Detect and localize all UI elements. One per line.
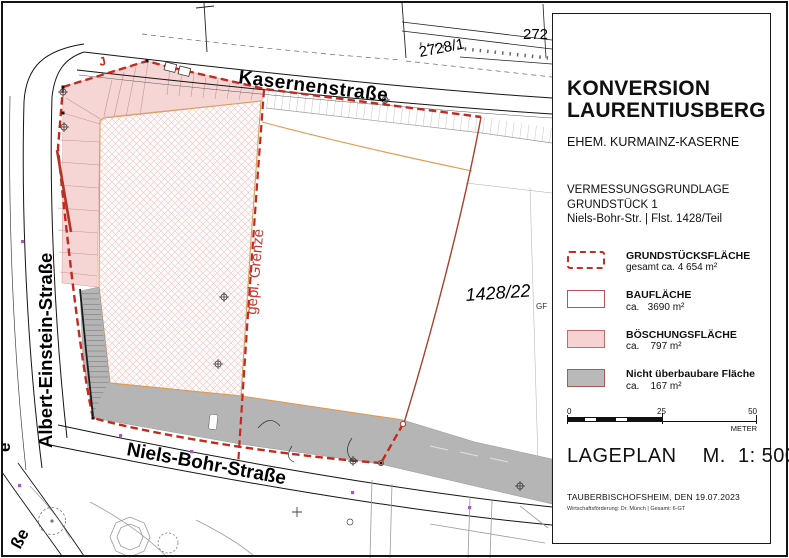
legend: GRUNDSTÜCKSFLÄCHE gesamt ca. 4 654 m² BA… (567, 250, 760, 393)
survey-basis-block: VERMESSUNGSGRUNDLAGE GRUNDSTÜCK 1 Niels-… (567, 183, 760, 227)
title-block-panel: KONVERSION LAURENTIUSBERG EHEM. KURMAINZ… (552, 13, 771, 544)
plan-type-label: LAGEPLAN (567, 445, 677, 468)
plan-title-line2: LAURENTIUSBERG (567, 100, 760, 122)
legend-value: gesamt ca. 4 654 m² (626, 262, 750, 274)
site-plan-sheet: Kasernenstraße Albert-Einstein-Straße Ni… (0, 0, 789, 558)
scale-bar: 0 25 50 METER (567, 408, 757, 436)
legend-swatch-white (567, 290, 605, 308)
legend-item-bauflaeche: BAUFLÄCHE ca. 3690 m² (567, 289, 760, 314)
legend-value: ca. 797 m² (626, 341, 737, 353)
street-label-fragment-e: e (0, 443, 14, 452)
parcel-label-272: 272 (523, 26, 548, 43)
building-area-crosshatch (99, 101, 261, 396)
parcel-label-gf: GF (536, 302, 547, 311)
credit-line: Wirtschaftsförderung: Dr. Münch | Gesamt… (567, 506, 760, 512)
legend-item-boeschungsflaeche: BÖSCHUNGSFLÄCHE ca. 797 m² (567, 329, 760, 354)
legend-label: BÖSCHUNGSFLÄCHE (626, 329, 737, 342)
legend-value: ca. 167 m² (626, 381, 755, 393)
legend-swatch-pink (567, 330, 605, 348)
legend-label: GRUNDSTÜCKSFLÄCHE (626, 250, 750, 263)
legend-swatch-gray (567, 369, 605, 387)
legend-label: Nicht überbaubare Fläche (626, 368, 755, 381)
scale-unit-label: METER (731, 424, 757, 433)
legend-item-nicht-ueberbaubar: Nicht überbaubare Fläche ca. 167 m² (567, 368, 760, 393)
plan-type-row: LAGEPLAN M. 1: 500 (567, 445, 760, 468)
plan-title: KONVERSION LAURENTIUSBERG (567, 78, 760, 122)
legend-label: BAUFLÄCHE (626, 289, 691, 302)
plan-title-line1: KONVERSION (567, 78, 760, 100)
place-date-line: TAUBERBISCHOFSHEIM, DEN 19.07.2023 (567, 492, 760, 502)
survey-basis-line3: Niels-Bohr-Str. | Flst. 1428/Teil (567, 212, 760, 227)
survey-basis-line1: VERMESSUNGSGRUNDLAGE (567, 183, 760, 198)
plan-subtitle: EHEM. KURMAINZ-KASERNE (567, 135, 760, 149)
street-label-albert-einstein-strasse: Albert-Einstein-Straße (35, 253, 56, 448)
legend-swatch-dashed-outline (567, 251, 605, 269)
plan-scale-label: M. 1: 500 (703, 445, 789, 468)
scale-bar-blocks (567, 417, 662, 422)
legend-value: ca. 3690 m² (626, 302, 691, 314)
survey-basis-line2: GRUNDSTÜCK 1 (567, 198, 760, 213)
legend-item-grundstuecksflaeche: GRUNDSTÜCKSFLÄCHE gesamt ca. 4 654 m² (567, 250, 760, 275)
